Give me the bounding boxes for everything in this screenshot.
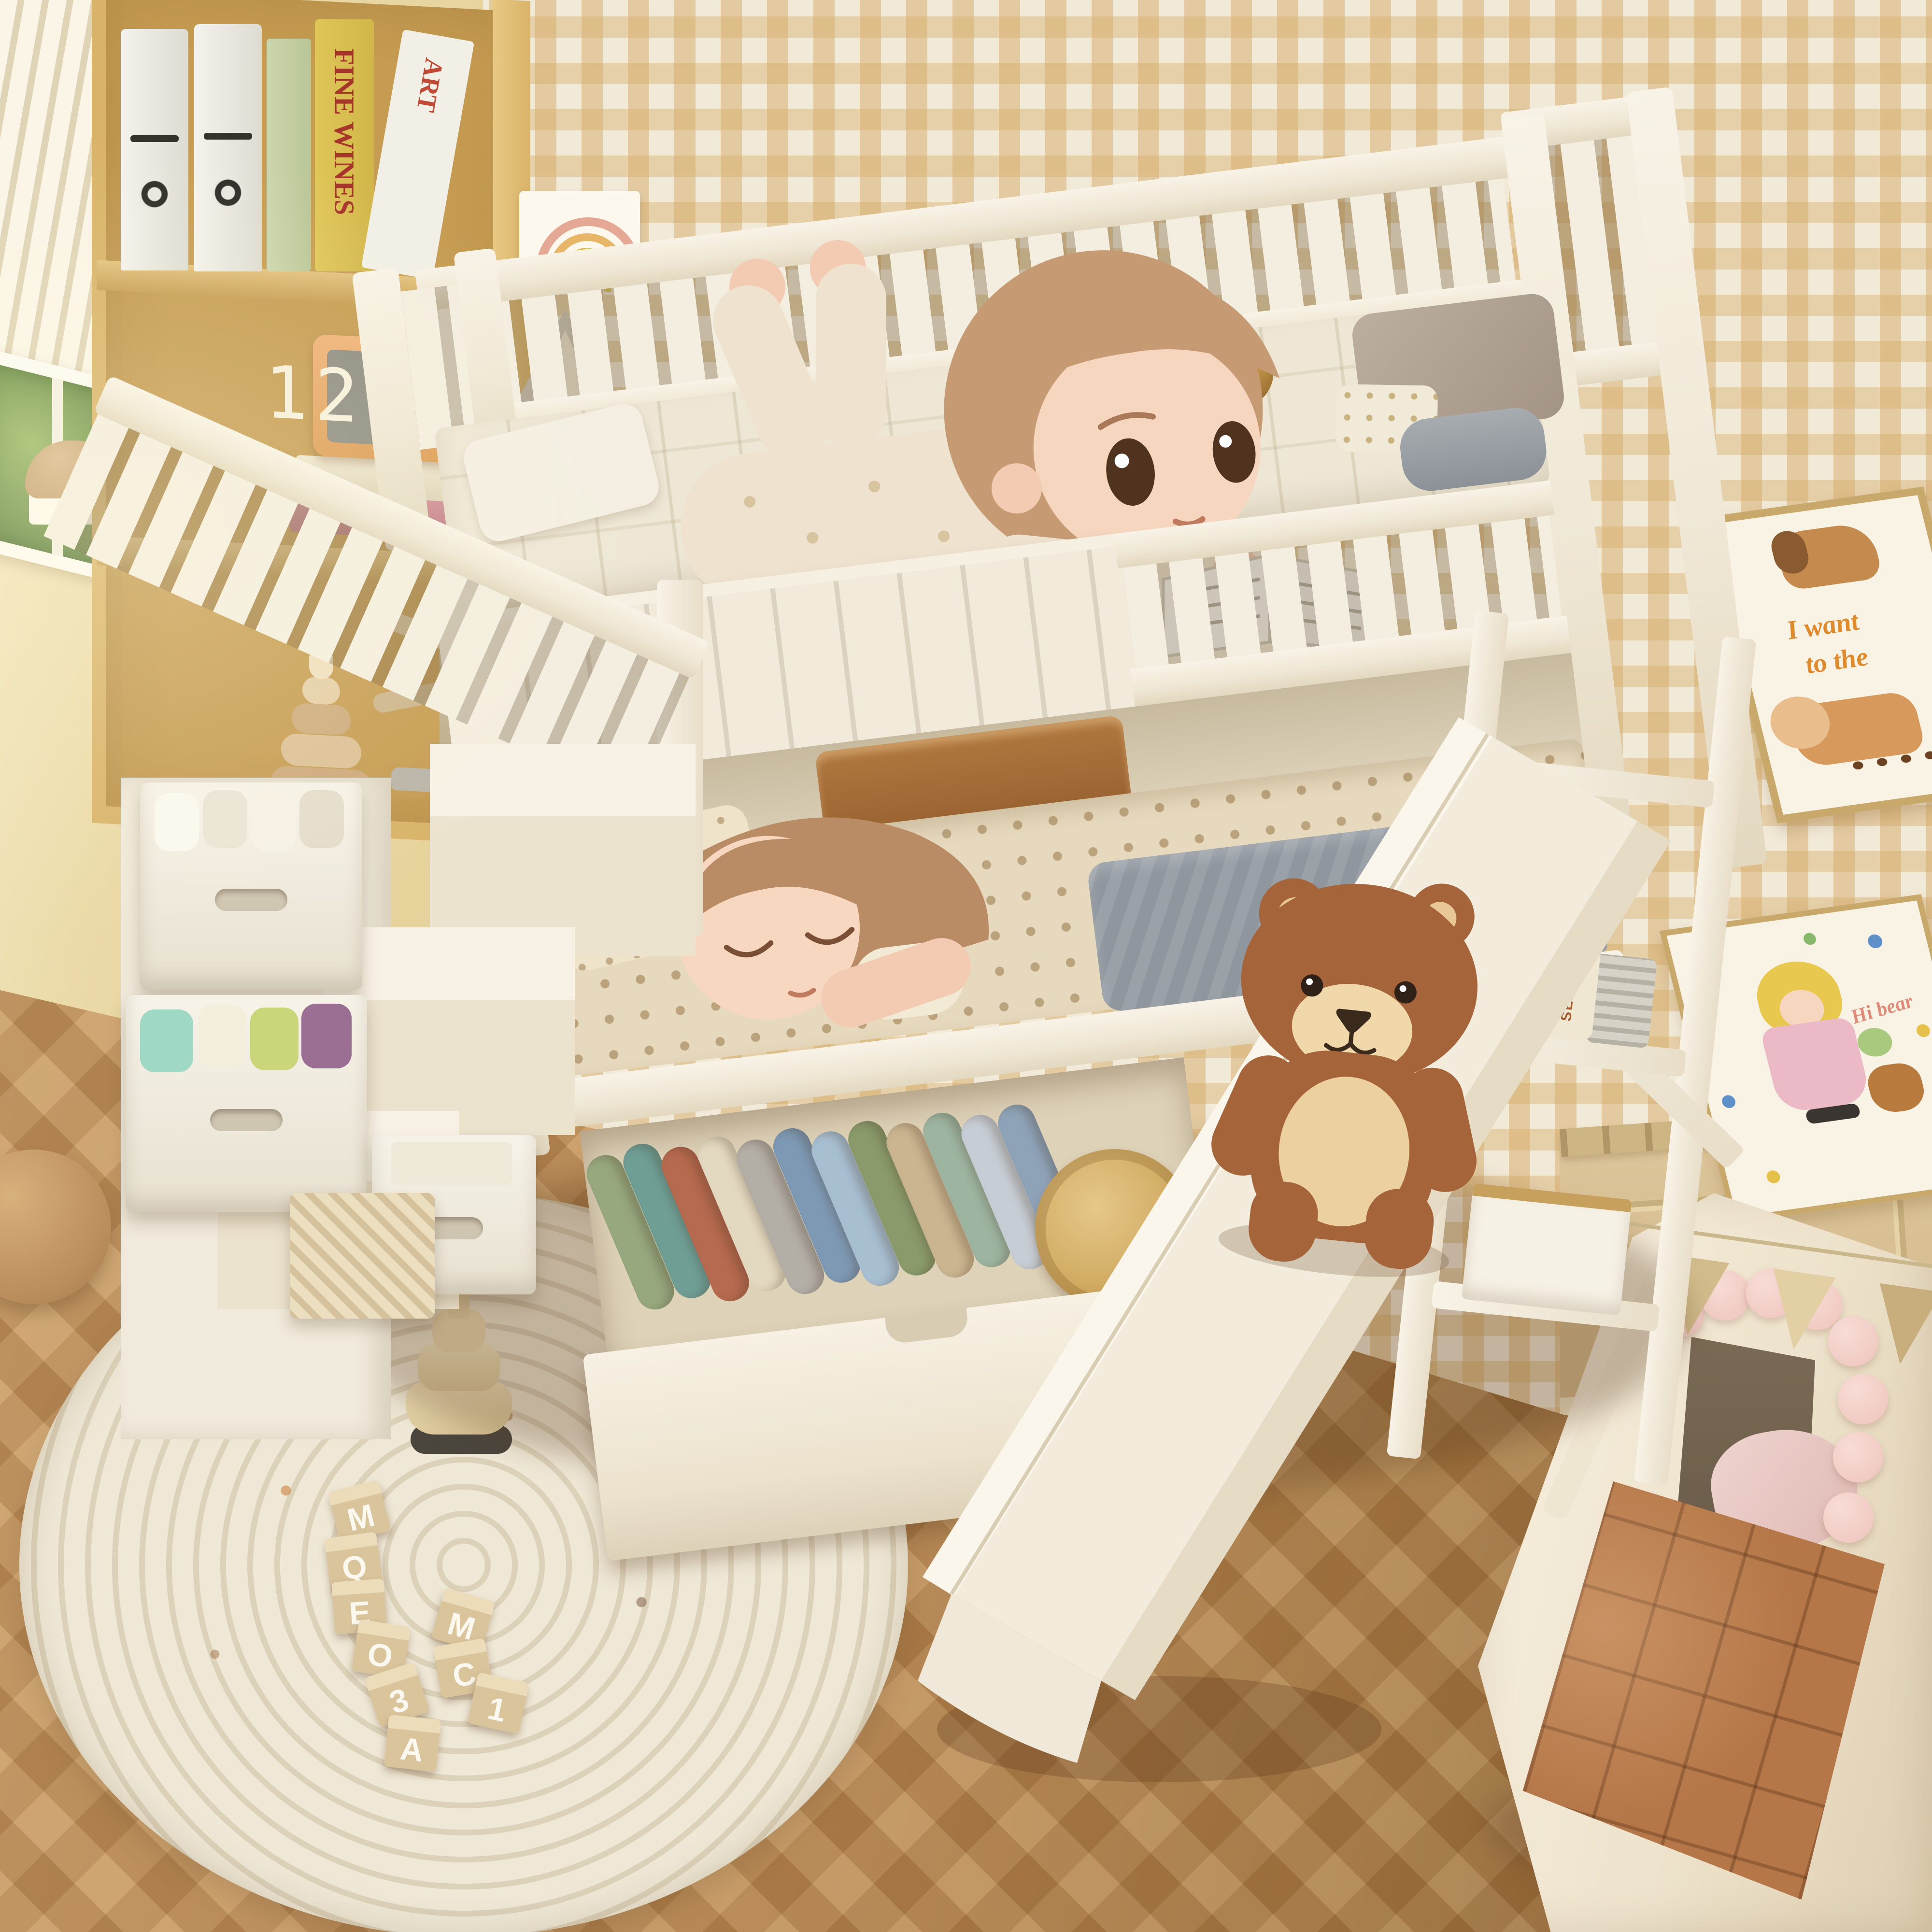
white-binder-2 bbox=[194, 24, 262, 271]
green-book bbox=[267, 39, 311, 271]
poster-girl-text: Hi bear bbox=[1847, 990, 1917, 1029]
poster-dogs-text-2: to the bbox=[1802, 641, 1872, 680]
poster-dogs-text-1: I want bbox=[1783, 606, 1862, 646]
kids-room-scene: FINE WINES ART 12:34 I want to th bbox=[0, 0, 1932, 1932]
binder-ring-hole bbox=[139, 179, 170, 210]
rolled-clothes bbox=[203, 790, 247, 848]
binder-label-slot bbox=[130, 135, 179, 142]
pompom bbox=[1828, 1316, 1878, 1366]
pompom bbox=[1838, 1374, 1888, 1424]
stair-step-1 bbox=[430, 744, 696, 956]
alphabet-block: A bbox=[384, 1715, 441, 1772]
folded-yellow-green bbox=[250, 1008, 298, 1070]
stacked-linens bbox=[391, 1142, 512, 1185]
poster-bear bbox=[1864, 1061, 1929, 1115]
bin-handle bbox=[215, 889, 287, 911]
storage-bin-woven bbox=[290, 1193, 435, 1319]
book-spine-text: FINE WINES bbox=[328, 48, 361, 215]
pompom bbox=[1823, 1492, 1874, 1543]
bin-handle bbox=[210, 1109, 283, 1131]
block-letter: 1 bbox=[484, 1688, 510, 1731]
folded-mint bbox=[140, 1009, 193, 1072]
white-binder-1 bbox=[121, 29, 188, 270]
poster-balloon bbox=[1855, 1026, 1895, 1059]
rolled-clothes bbox=[251, 793, 296, 851]
reading-girl-leg-2 bbox=[816, 264, 886, 447]
binder-ring-hole bbox=[213, 177, 243, 208]
pompom bbox=[1833, 1432, 1883, 1482]
rolled-clothes bbox=[299, 790, 344, 848]
book-spine-text: ART bbox=[411, 56, 450, 114]
yellow-book-fine-wines: FINE WINES bbox=[315, 19, 374, 271]
block-letter: A bbox=[398, 1729, 426, 1771]
binder-label-slot bbox=[204, 133, 253, 140]
storage-bin-folded-clothes bbox=[126, 995, 367, 1212]
step-top bbox=[430, 744, 696, 816]
folded-purple bbox=[301, 1004, 352, 1068]
storage-bin-rolled-whites bbox=[140, 782, 362, 990]
teddy-bear bbox=[1168, 853, 1537, 1291]
rolled-clothes bbox=[155, 793, 199, 851]
alphabet-block: 1 bbox=[468, 1672, 529, 1734]
folded-white bbox=[198, 1005, 246, 1067]
